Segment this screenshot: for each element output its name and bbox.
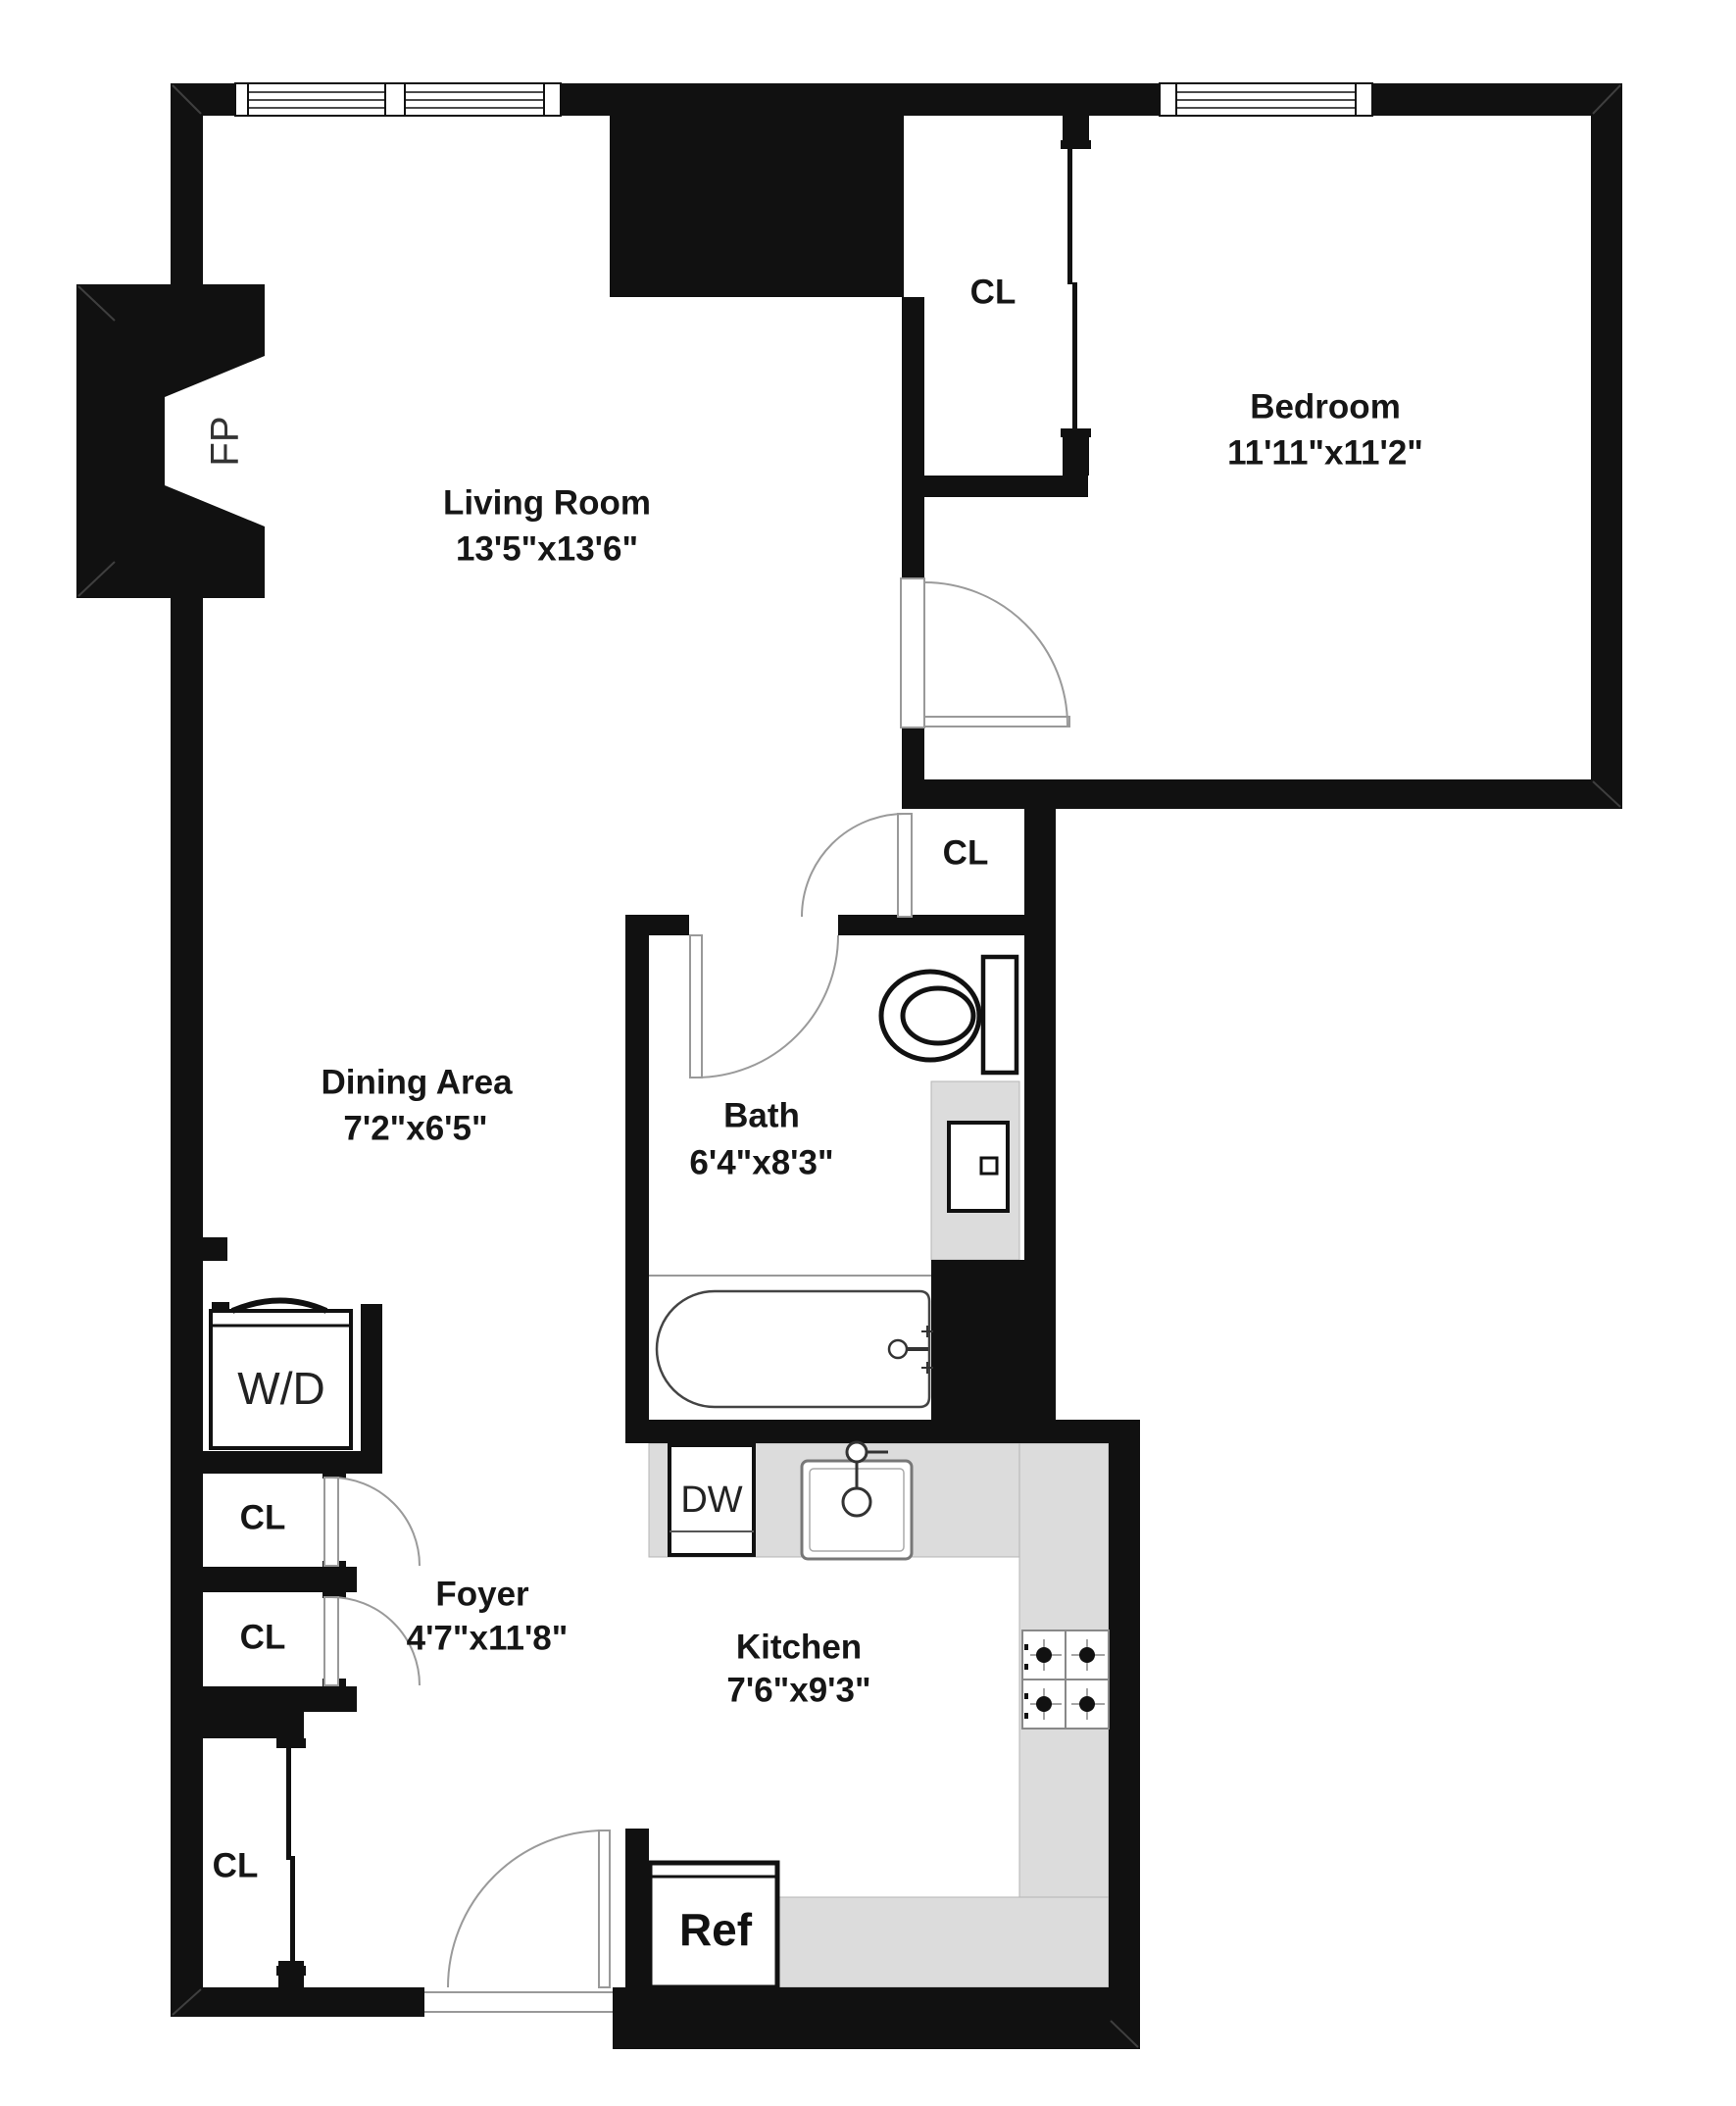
bath-label: Bath — [723, 1096, 800, 1134]
sink-fixture — [802, 1442, 912, 1559]
dining-area-dims: 7'2"x6'5" — [343, 1109, 487, 1147]
foyer-closet-2-label: CL — [240, 1618, 286, 1656]
kitchen-label: Kitchen — [736, 1628, 862, 1666]
living-room-dims: 13'5"x13'6" — [456, 529, 638, 568]
foyer-dims: 4'7"x11'8" — [407, 1619, 569, 1657]
bedroom-dims: 11'11"x11'2" — [1227, 433, 1423, 472]
kitchen-dims: 7'6"x9'3" — [726, 1671, 870, 1709]
living-room-window — [235, 83, 561, 116]
bedroom-window — [1160, 83, 1372, 116]
hall-closet-label: CL — [943, 833, 989, 872]
bedroom-label: Bedroom — [1250, 387, 1401, 426]
dining-area-label: Dining Area — [321, 1063, 513, 1101]
stove-fixture — [1022, 1630, 1109, 1729]
living-room-label: Living Room — [443, 483, 651, 522]
wall-block — [610, 116, 904, 297]
foyer-label: Foyer — [435, 1575, 529, 1613]
refrigerator-label: Ref — [679, 1904, 753, 1955]
bathtub-fixture — [649, 1276, 933, 1407]
dishwasher-label: DW — [680, 1479, 742, 1521]
bedroom-closet-label: CL — [970, 273, 1017, 311]
foyer-closet-3-label: CL — [213, 1846, 259, 1884]
fireplace-label: FP — [204, 416, 247, 466]
foyer-closet-1-label: CL — [240, 1498, 286, 1536]
bath-dims: 6'4"x8'3" — [689, 1143, 833, 1181]
floor-plan: Living Room 13'5"x13'6" Bedroom 11'11"x1… — [0, 0, 1736, 2106]
medicine-cabinet — [949, 1123, 1008, 1211]
washer-dryer-label: W/D — [237, 1363, 324, 1414]
